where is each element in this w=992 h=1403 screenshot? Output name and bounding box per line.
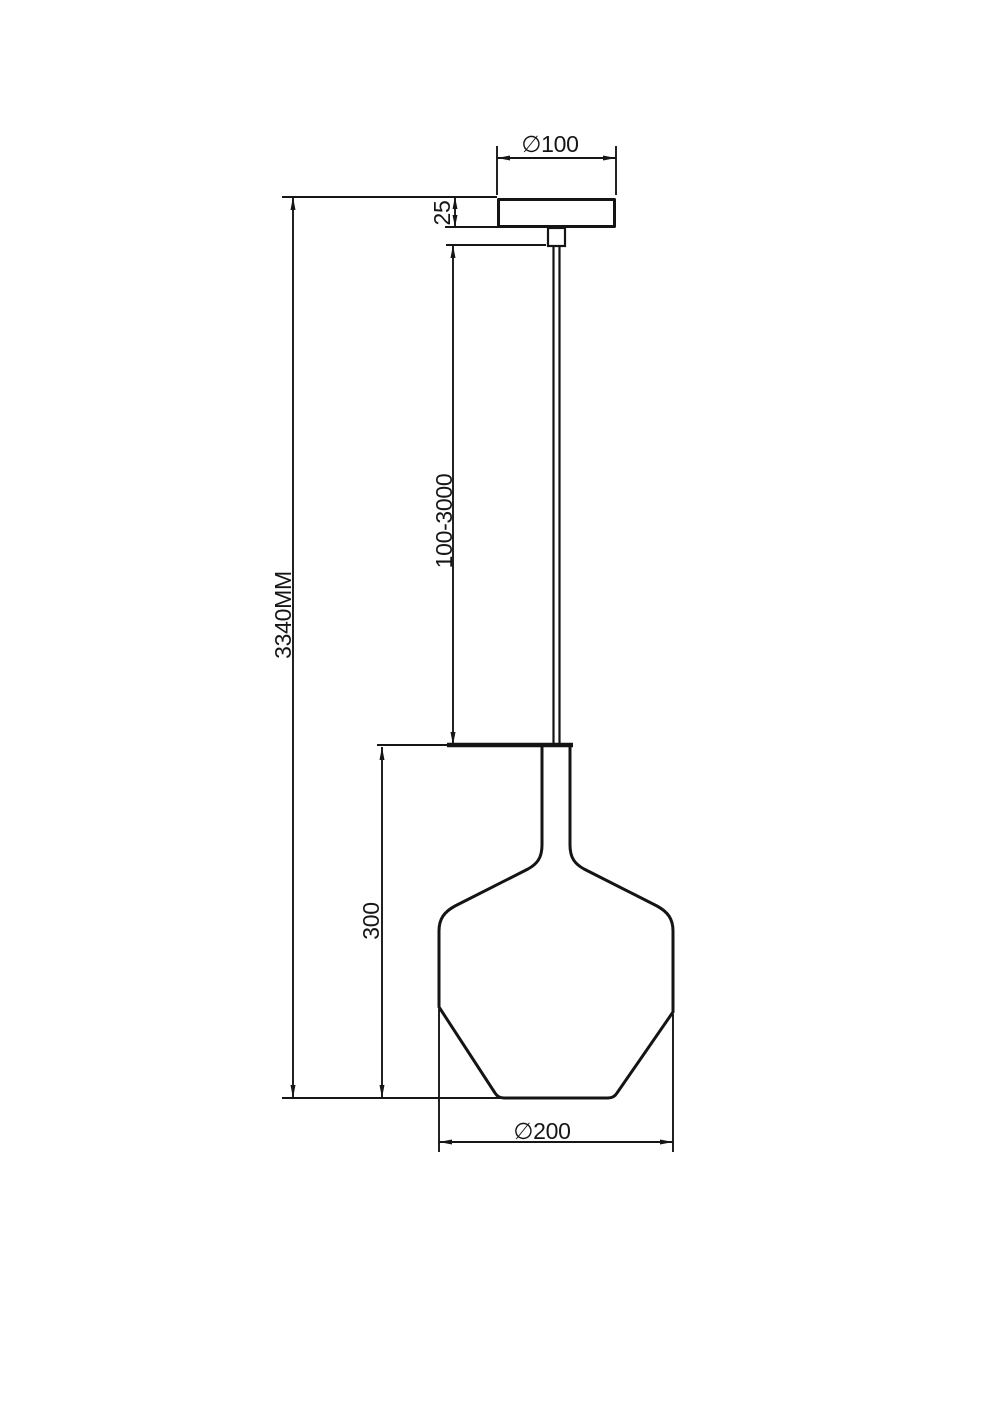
arrowhead-canopy-diameter-left	[497, 156, 510, 161]
arrowhead-suspension-top	[451, 245, 456, 258]
suspension-length-label: 100-3000	[431, 474, 457, 569]
cord-connector-outline	[548, 228, 565, 246]
arrowhead-overall-top	[291, 197, 296, 210]
canopy-height-label: 25	[429, 201, 455, 226]
arrowhead-shade-height-top	[380, 747, 385, 760]
overall-height-label: 3340MM	[270, 571, 296, 659]
canopy-diameter-label: ∅100	[521, 131, 578, 157]
arrowhead-shade-diameter-right	[660, 1140, 673, 1145]
shade-diameter-label: ∅200	[513, 1118, 570, 1144]
drawing-page: ∅100 25 100-3000 3340MM 300 ∅200	[0, 0, 992, 1403]
arrowhead-overall-bottom	[291, 1085, 296, 1098]
lamp-shade-outline	[439, 747, 673, 1098]
shade-height-label: 300	[358, 902, 384, 939]
canopy-outline	[499, 200, 615, 227]
arrowhead-canopy-diameter-right	[603, 156, 616, 161]
pendant-lamp-dimension-drawing: ∅100 25 100-3000 3340MM 300 ∅200	[0, 0, 992, 1403]
arrowhead-shade-diameter-left	[439, 1140, 452, 1145]
arrowhead-shade-height-bottom	[380, 1085, 385, 1098]
